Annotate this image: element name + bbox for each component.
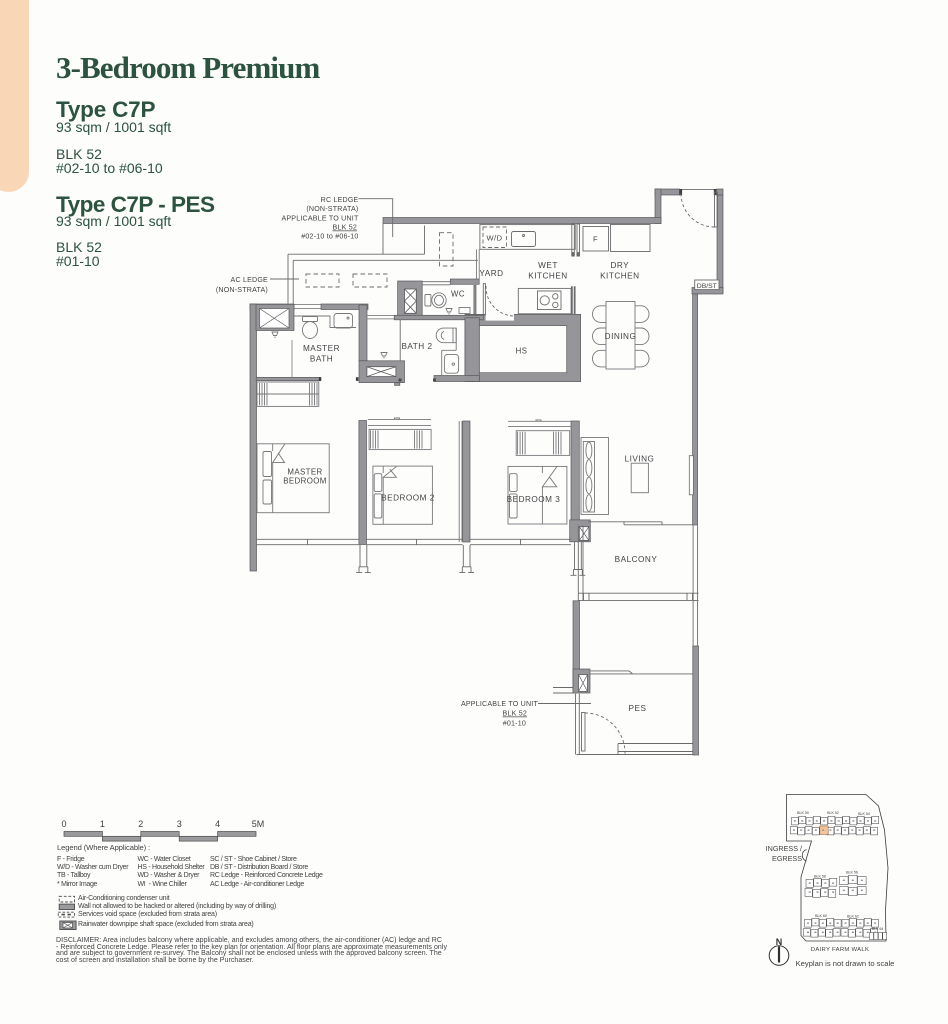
svg-text:PES: PES — [629, 704, 647, 713]
svg-text:BLK 60: BLK 60 — [815, 914, 827, 918]
svg-text:KITCHEN: KITCHEN — [528, 272, 567, 281]
svg-text:(NON-STRATA): (NON-STRATA) — [306, 205, 358, 213]
svg-text:BLK 58: BLK 58 — [814, 875, 826, 879]
svg-text:BLK 52: BLK 52 — [827, 811, 839, 815]
svg-text:BLK 62: BLK 62 — [847, 915, 859, 919]
svg-text:KITCHEN: KITCHEN — [600, 272, 639, 281]
svg-text:BEDROOM 2: BEDROOM 2 — [381, 494, 435, 503]
svg-text:RC LEDGE: RC LEDGE — [321, 196, 359, 204]
svg-text:DRY: DRY — [610, 261, 629, 270]
svg-text:DINING: DINING — [605, 332, 637, 341]
svg-text:APPLICABLE TO UNIT: APPLICABLE TO UNIT — [281, 215, 359, 223]
svg-text:3: 3 — [177, 819, 182, 829]
svg-text:MASTER: MASTER — [287, 468, 322, 477]
svg-text:AC LEDGE: AC LEDGE — [231, 276, 269, 284]
svg-text:WET: WET — [538, 261, 558, 270]
svg-text:1: 1 — [100, 819, 105, 829]
svg-text:4: 4 — [215, 819, 220, 829]
svg-text:F: F — [593, 235, 598, 244]
svg-text:N: N — [776, 937, 783, 947]
svg-text:(NON-STRATA): (NON-STRATA) — [216, 286, 268, 294]
svg-text:BATH: BATH — [310, 355, 333, 364]
svg-text:MASTER: MASTER — [303, 344, 340, 353]
svg-text:BLK 52: BLK 52 — [333, 224, 357, 232]
svg-text:LIVING: LIVING — [625, 455, 655, 464]
svg-text:DB/ST: DB/ST — [697, 283, 717, 290]
svg-text:#02-10 to #06-10: #02-10 to #06-10 — [301, 233, 358, 241]
svg-text:APPLICABLE TO UNIT: APPLICABLE TO UNIT — [461, 700, 539, 708]
svg-text:BLK 56: BLK 56 — [846, 871, 858, 875]
svg-text:BATH 2: BATH 2 — [401, 342, 432, 351]
svg-text:2: 2 — [138, 819, 143, 829]
svg-text:YARD: YARD — [479, 269, 503, 278]
svg-text:W/D: W/D — [486, 234, 502, 243]
svg-text:5M: 5M — [252, 819, 265, 829]
svg-text:BLK 50: BLK 50 — [797, 811, 809, 815]
svg-text:BLK 64: BLK 64 — [872, 927, 884, 931]
svg-text:HS: HS — [516, 347, 528, 356]
svg-text:#01-10: #01-10 — [503, 720, 526, 728]
svg-text:BEDROOM: BEDROOM — [283, 476, 327, 485]
svg-text:BLK 54: BLK 54 — [858, 812, 870, 816]
svg-text:BEDROOM 3: BEDROOM 3 — [507, 495, 561, 504]
svg-text:0: 0 — [61, 819, 66, 829]
svg-text:BALCONY: BALCONY — [615, 555, 658, 564]
svg-text:BLK 52: BLK 52 — [503, 710, 527, 718]
svg-text:WC: WC — [451, 290, 465, 299]
